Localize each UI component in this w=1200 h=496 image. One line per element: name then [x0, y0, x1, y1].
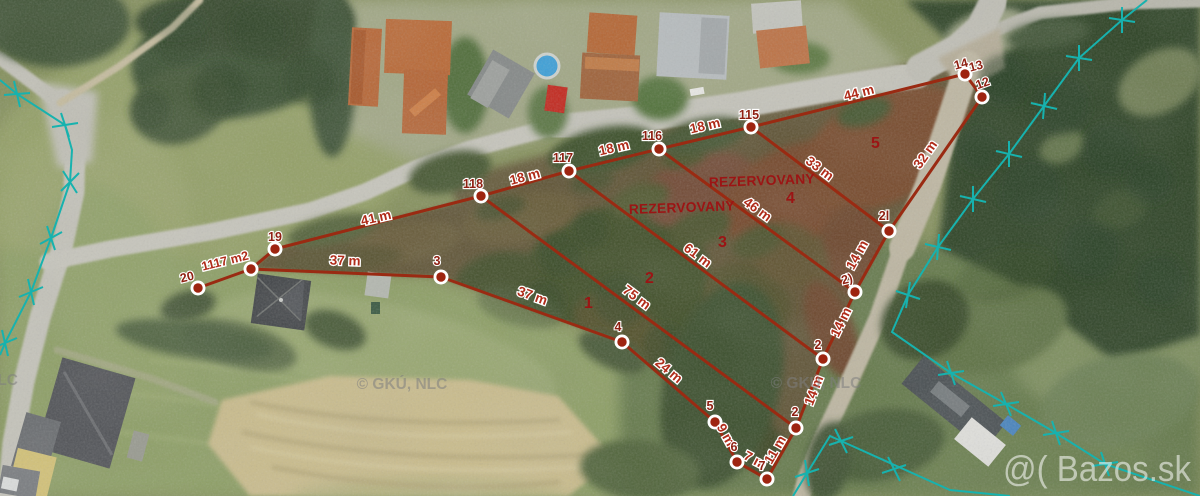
svg-text:© GKÚ, NLC: © GKÚ, NLC [0, 371, 18, 389]
svg-text:6: 6 [731, 440, 738, 454]
svg-text:118: 118 [463, 177, 483, 191]
svg-text:@( Bazos.sk: @( Bazos.sk [1003, 448, 1192, 489]
svg-text:3: 3 [434, 254, 441, 268]
svg-text:2l: 2l [879, 209, 889, 223]
svg-text:19: 19 [268, 230, 282, 244]
svg-text:115: 115 [739, 108, 759, 122]
svg-text:2: 2 [792, 405, 799, 419]
svg-text:1: 1 [584, 295, 593, 312]
svg-text:5: 5 [707, 399, 714, 413]
svg-text:2: 2 [645, 270, 654, 287]
svg-text:117: 117 [553, 151, 573, 165]
svg-text:© GKÚ, NLC: © GKÚ, NLC [771, 374, 862, 392]
svg-text:4: 4 [786, 190, 795, 207]
svg-text:4: 4 [615, 320, 622, 334]
svg-text:37 m: 37 m [330, 252, 361, 268]
svg-text:116: 116 [642, 129, 662, 143]
svg-text:7: 7 [759, 459, 766, 473]
svg-text:© GKÚ, NLC: © GKÚ, NLC [357, 375, 448, 393]
svg-text:5: 5 [871, 135, 880, 152]
svg-text:2: 2 [815, 338, 822, 352]
svg-text:3: 3 [718, 234, 727, 251]
